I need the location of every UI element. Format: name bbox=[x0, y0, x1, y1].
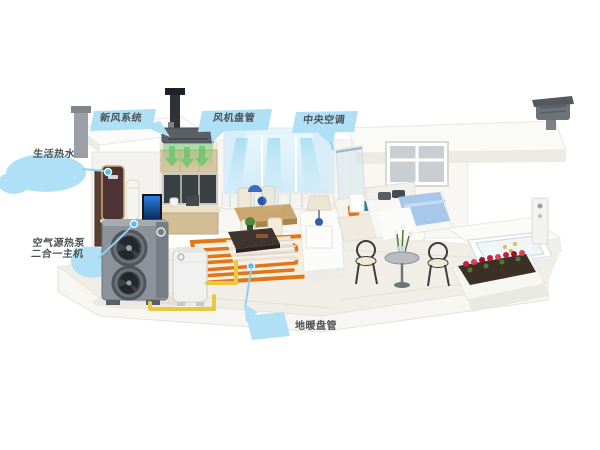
gray-pillow bbox=[378, 192, 391, 200]
heat-pump-home-diagram: 新风系统 风机盘管 中央空调 生活热水 空气源热泵 二合一主机 地暖盘管 bbox=[0, 0, 600, 450]
anchor-dot-floor-heating bbox=[248, 263, 255, 270]
side-table bbox=[306, 226, 332, 248]
anchor-dot-heat-pump bbox=[131, 221, 138, 228]
fan-top bbox=[112, 231, 146, 265]
water-softener bbox=[126, 180, 139, 220]
house-cutaway-illustration bbox=[0, 0, 600, 450]
coffee-machine bbox=[186, 195, 199, 206]
buffer-tank bbox=[173, 247, 207, 306]
kettle bbox=[170, 198, 178, 206]
fan-bottom bbox=[113, 267, 145, 299]
bedroom-window bbox=[386, 142, 448, 186]
countertop bbox=[158, 206, 220, 213]
fresh-air-flow-arrows bbox=[165, 146, 209, 168]
outdoor-shower-column bbox=[532, 198, 548, 244]
dresser bbox=[350, 194, 364, 212]
chimney-cap bbox=[71, 106, 91, 113]
hot-water-tank bbox=[100, 166, 126, 223]
chimney bbox=[74, 110, 88, 158]
lamp-base bbox=[315, 218, 323, 226]
base-cabinets bbox=[160, 213, 218, 234]
heat-pump-outdoor-unit bbox=[102, 220, 168, 305]
ac-airflow-streams bbox=[222, 138, 326, 216]
anchor-dot-hot-water bbox=[105, 169, 112, 176]
